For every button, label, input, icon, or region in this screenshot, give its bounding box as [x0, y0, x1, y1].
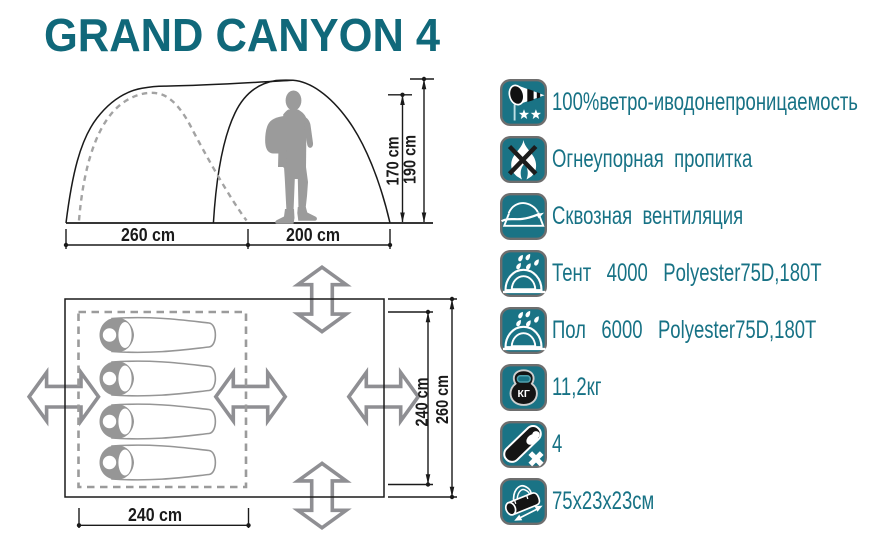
- svg-text:240 cm: 240 cm: [128, 505, 182, 525]
- svg-text:260 cm: 260 cm: [121, 225, 175, 245]
- svg-text:240 cm: 240 cm: [411, 378, 431, 427]
- svg-text:200 cm: 200 cm: [286, 225, 340, 245]
- svg-text:260 cm: 260 cm: [432, 375, 452, 424]
- svg-text:КГ: КГ: [518, 388, 530, 400]
- svg-text:190 cm: 190 cm: [399, 135, 419, 184]
